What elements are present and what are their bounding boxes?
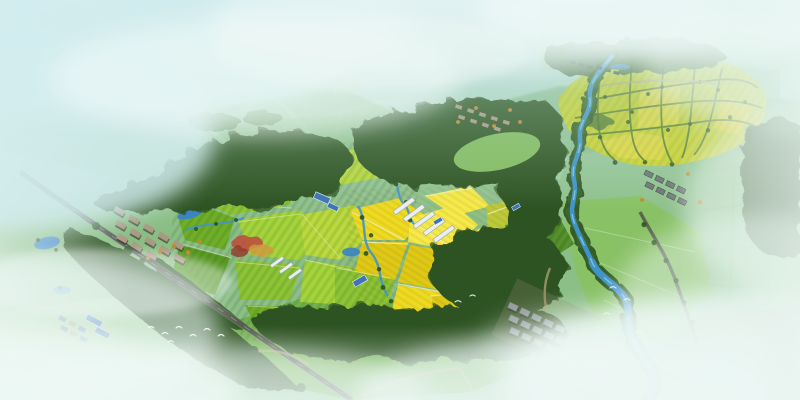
- aerial-landscape-render: [0, 0, 800, 400]
- flower-patch: [230, 247, 248, 257]
- atmosphere: [0, 0, 800, 400]
- mist-wisp: [210, 14, 530, 90]
- mist-cloud: [480, 310, 640, 380]
- landscape-canvas: [0, 0, 800, 400]
- pond: [342, 248, 360, 257]
- flower-patch: [249, 244, 273, 256]
